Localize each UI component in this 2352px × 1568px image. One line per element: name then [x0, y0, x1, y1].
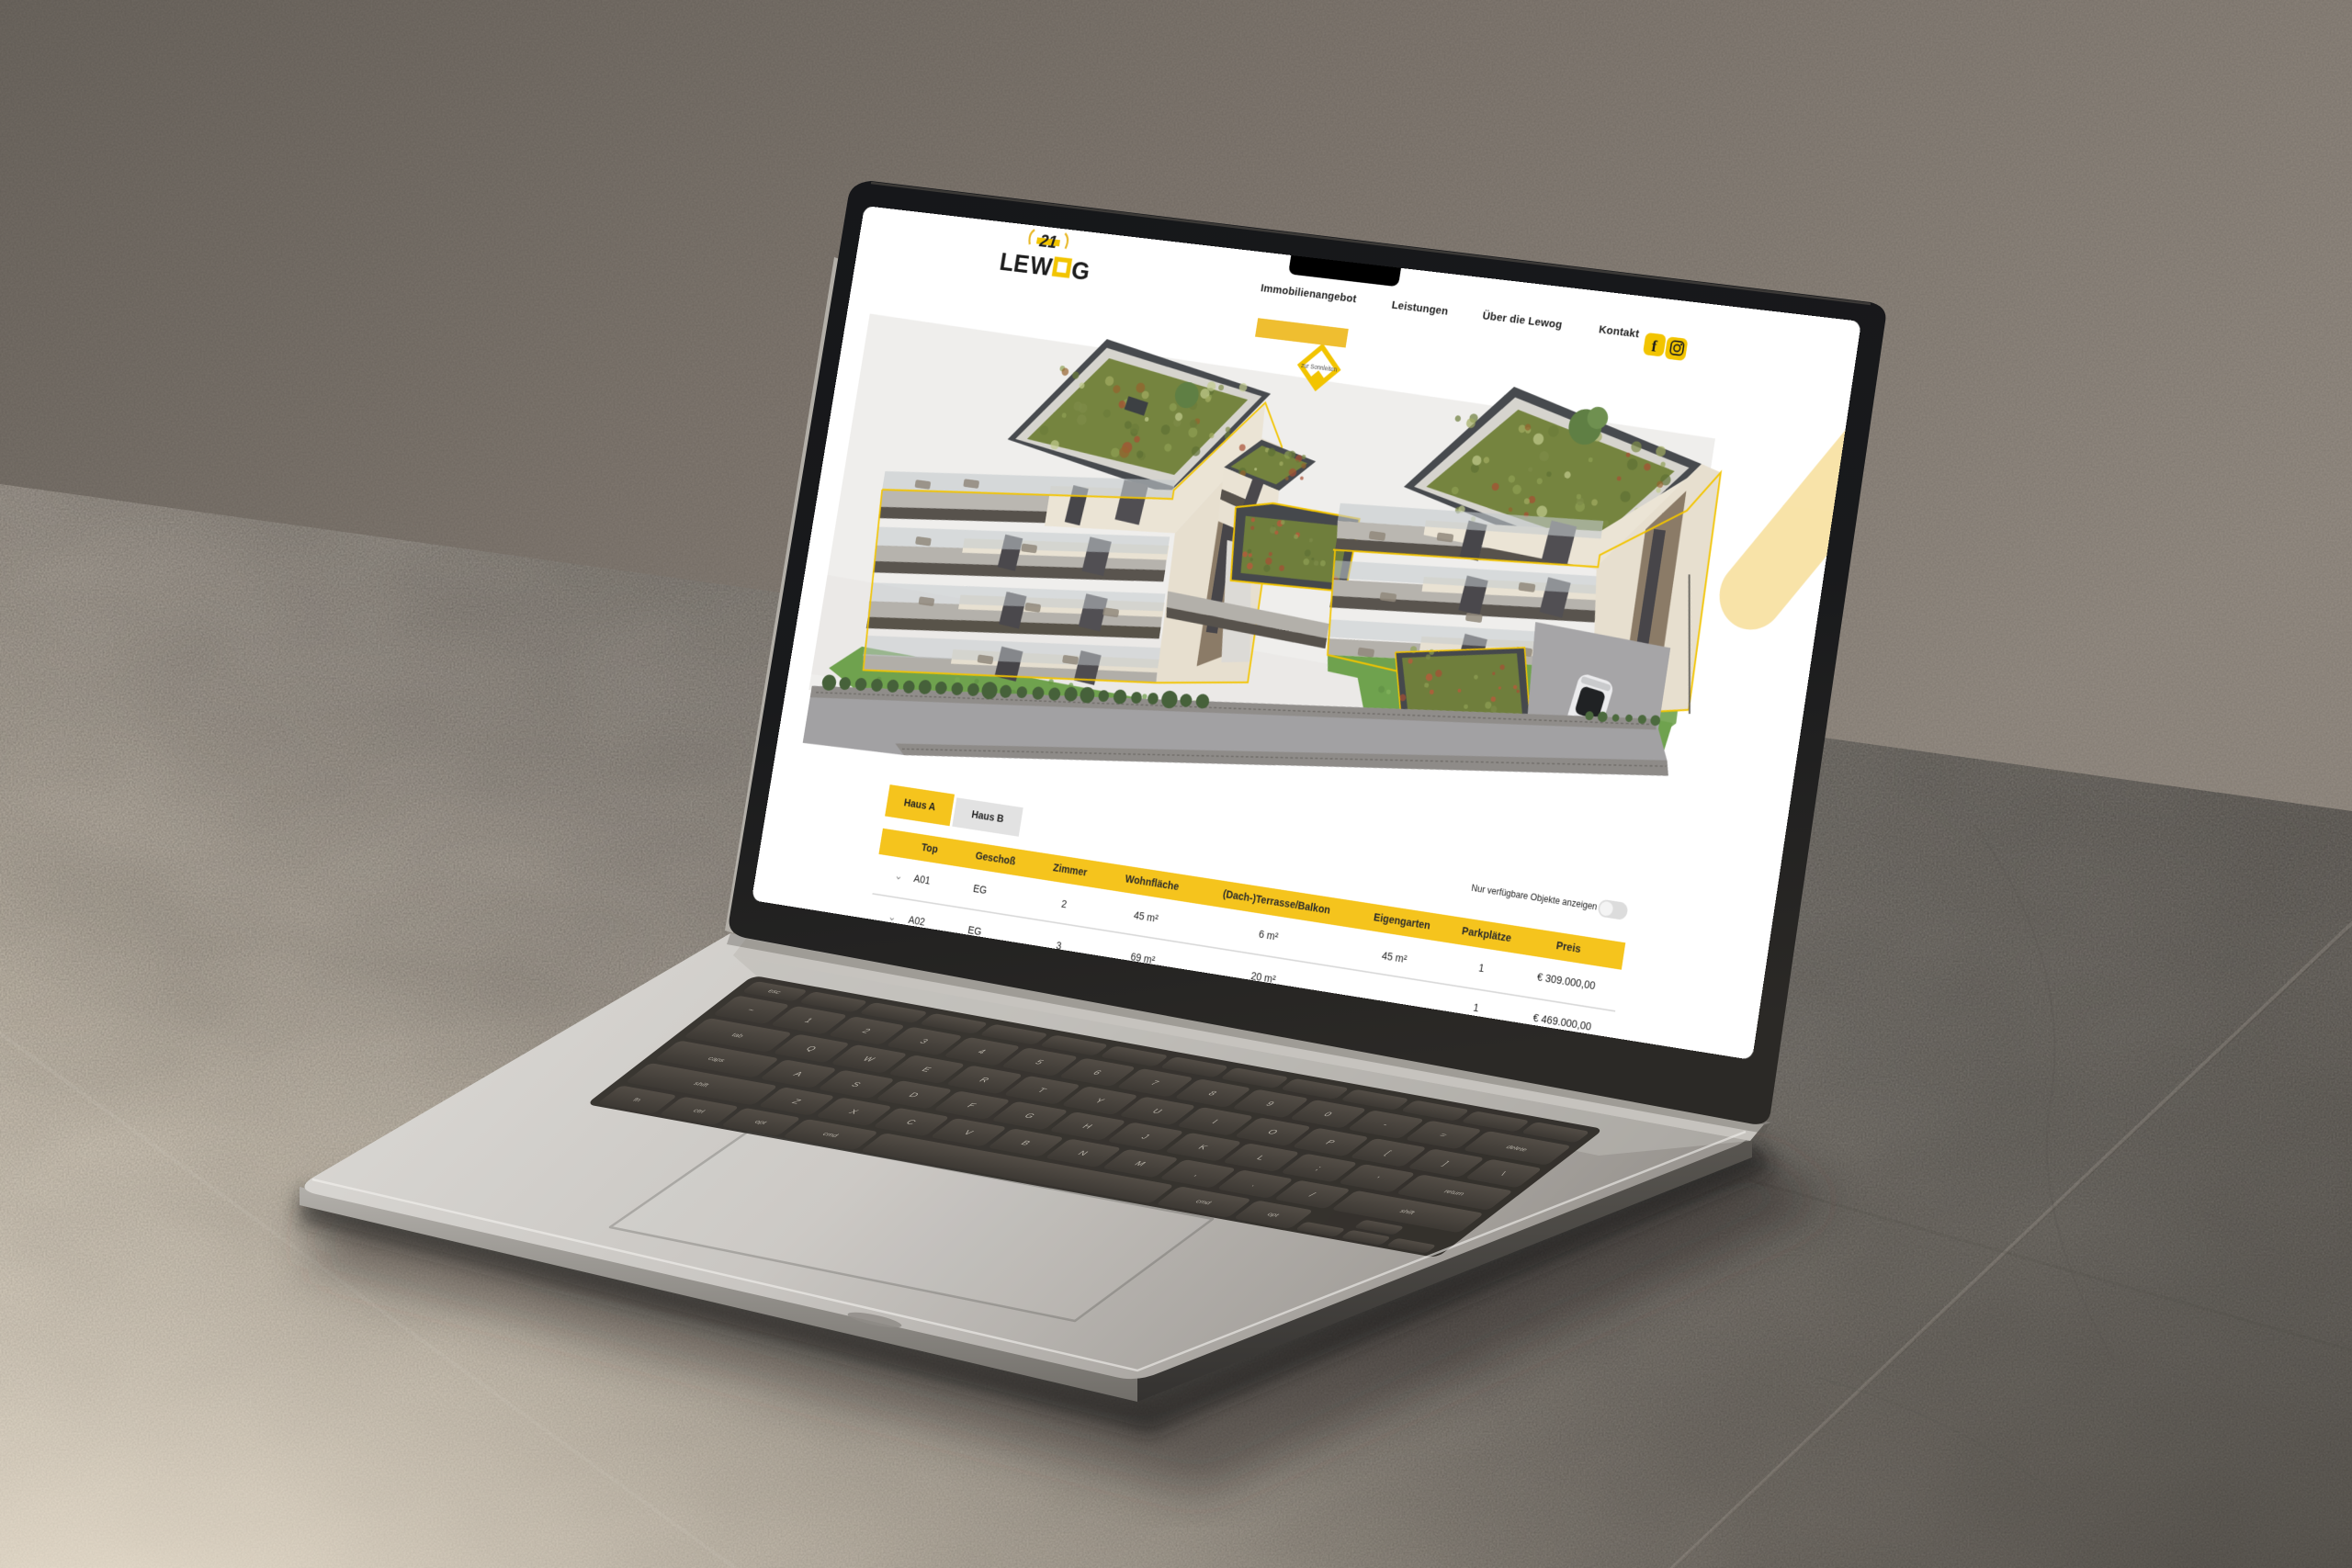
svg-text:G: G — [1069, 256, 1091, 287]
svg-text:LE: LE — [998, 248, 1032, 279]
svg-text:f: f — [1650, 337, 1658, 355]
svg-text:21: 21 — [1037, 231, 1058, 253]
svg-text:W: W — [1028, 252, 1055, 282]
